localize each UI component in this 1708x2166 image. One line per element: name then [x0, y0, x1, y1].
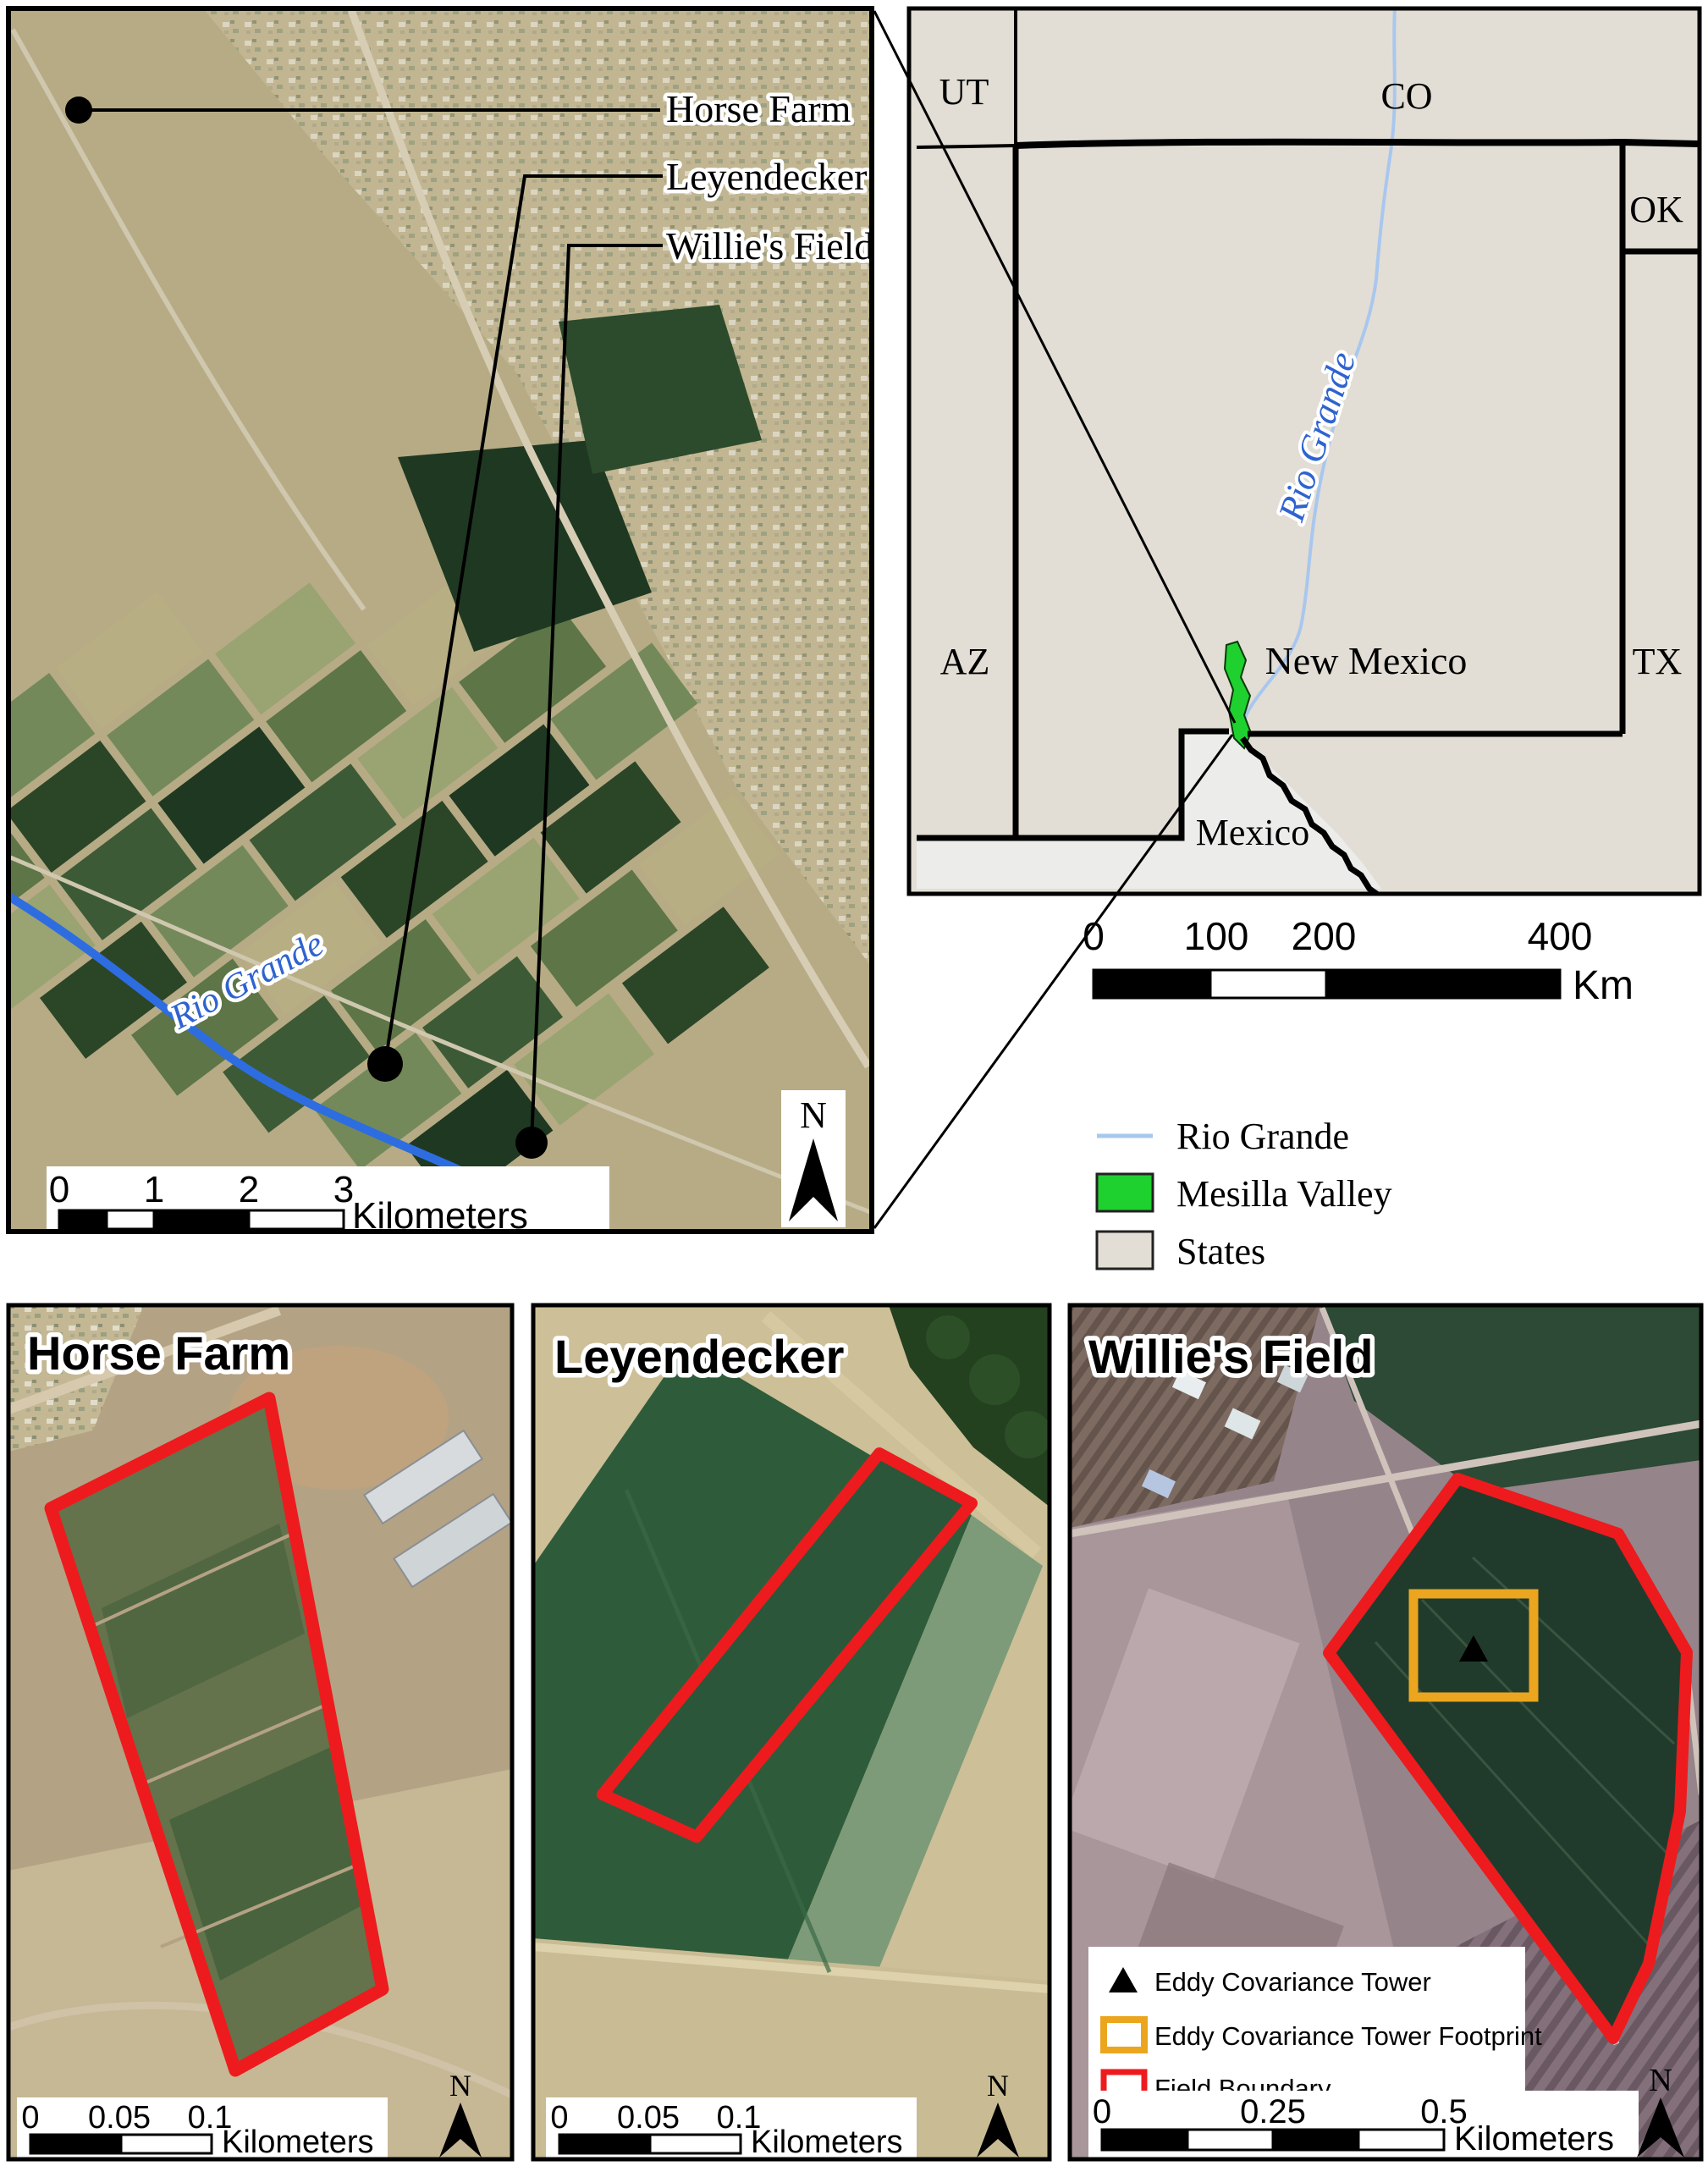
svg-text:0: 0 [1093, 2093, 1111, 2130]
svg-text:0: 0 [21, 2100, 39, 2136]
svg-text:0.05: 0.05 [617, 2100, 680, 2136]
site-marker-leyendecker [367, 1046, 403, 1082]
legend-label-rio-grande: Rio Grande [1176, 1116, 1349, 1157]
svg-text:Kilometers: Kilometers [751, 2125, 903, 2160]
north-label: N [800, 1094, 827, 1136]
panel-title-leyendecker: Leyendecker [554, 1330, 844, 1383]
svg-text:400: 400 [1528, 914, 1593, 958]
svg-text:0: 0 [1083, 914, 1105, 958]
state-label-tx: TX [1633, 641, 1683, 682]
figure-svg: Rio Grande Horse Farm Leyendecker Willie… [0, 0, 1708, 2166]
state-label-co: CO [1380, 75, 1432, 117]
site-label-leyendecker: Leyendecker [666, 155, 868, 198]
state-label-ut: UT [939, 71, 989, 113]
svg-text:N: N [449, 2069, 471, 2103]
svg-text:3: 3 [333, 1169, 354, 1210]
panel-willies-field: Willie's Field Eddy Covariance Tower Edd… [1061, 1305, 1701, 2159]
svg-text:100: 100 [1184, 914, 1249, 958]
legend-footprint-icon [1104, 2020, 1144, 2050]
state-label-ok: OK [1629, 189, 1683, 230]
site-marker-horse-farm [65, 96, 92, 124]
panel-leyendecker: Leyendecker 0 0.05 0.1 Kilometers N [533, 1305, 1052, 2160]
main-satellite-map: Rio Grande Horse Farm Leyendecker Willie… [0, 8, 873, 1359]
site-label-horse-farm: Horse Farm [666, 87, 851, 130]
horse-farm-scale-bar: 0 0.05 0.1 Kilometers [17, 2097, 388, 2160]
legend-label-footprint: Eddy Covariance Tower Footprint [1154, 2021, 1542, 2051]
panel-title-horse-farm: Horse Farm [27, 1326, 290, 1380]
svg-text:0.25: 0.25 [1240, 2093, 1306, 2130]
svg-text:0: 0 [49, 1169, 69, 1210]
state-label-nm: New Mexico [1265, 639, 1468, 682]
svg-text:Kilometers: Kilometers [222, 2125, 374, 2160]
panel-horse-farm: Horse Farm 0 0.05 0.1 Kilometers N [8, 1305, 512, 2160]
svg-text:N: N [987, 2069, 1009, 2103]
site-marker-willies-field [515, 1127, 548, 1159]
svg-text:N: N [1649, 2063, 1672, 2098]
study-area-figure: Rio Grande Horse Farm Leyendecker Willie… [0, 0, 1708, 2166]
panel-title-willies-field: Willie's Field [1088, 1330, 1373, 1383]
country-label-mexico: Mexico [1196, 812, 1309, 853]
svg-text:Kilometers: Kilometers [1454, 2120, 1614, 2158]
main-map-scale-bar: 0 1 2 3 Kilometers [47, 1166, 609, 1237]
inset-scale-unit: Km [1573, 963, 1634, 1008]
willies-scale-bar: 0 0.25 0.5 Kilometers [1088, 2091, 1639, 2159]
inset-legend: Rio Grande Mesilla Valley States [1097, 1116, 1392, 1272]
leyendecker-scale-bar: 0 0.05 0.1 Kilometers [546, 2097, 917, 2160]
site-label-willies-field: Willie's Field [666, 224, 873, 267]
main-map-north-arrow: N [781, 1090, 846, 1227]
svg-text:200: 200 [1292, 914, 1357, 958]
svg-text:2: 2 [239, 1169, 259, 1210]
inset-scale-bar: 0 100 200 400 Km [1083, 914, 1634, 1008]
state-label-az: AZ [940, 641, 990, 682]
legend-label-tower: Eddy Covariance Tower [1154, 1967, 1431, 1997]
svg-text:1: 1 [144, 1169, 164, 1210]
svg-text:0: 0 [550, 2100, 568, 2136]
legend-label-states: States [1176, 1231, 1265, 1272]
svg-text:0.05: 0.05 [88, 2100, 151, 2136]
legend-label-mesilla-valley: Mesilla Valley [1176, 1173, 1392, 1215]
legend-mesilla-swatch-icon [1097, 1174, 1153, 1211]
legend-states-swatch-icon [1097, 1232, 1153, 1269]
inset-state-map: UT CO OK AZ New Mexico TX Mexico Rio Gra… [909, 8, 1700, 897]
